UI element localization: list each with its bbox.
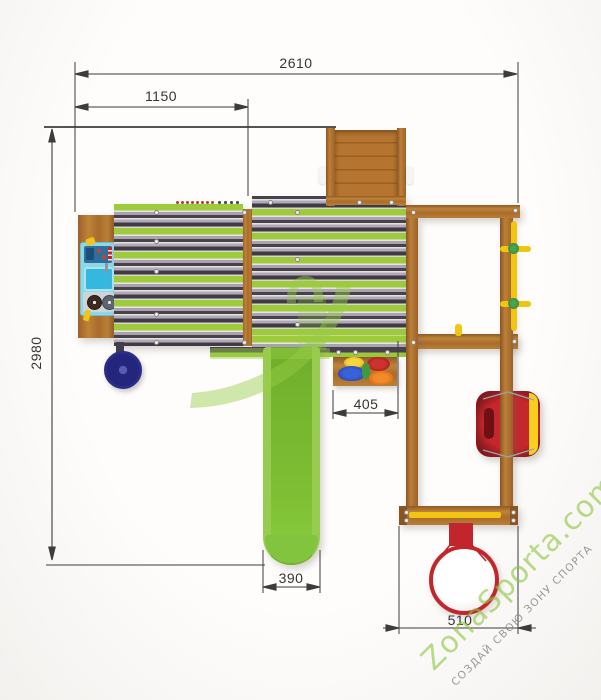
deck-dark-dot <box>224 201 227 204</box>
deck-right-section <box>252 196 406 347</box>
screw <box>513 208 518 213</box>
climb-box-bottom-bar <box>326 196 406 205</box>
screw <box>154 312 159 317</box>
screw <box>242 210 247 215</box>
screw <box>353 350 358 355</box>
climb-knob-upper <box>508 243 519 254</box>
dim-slide-label: 390 <box>266 570 316 586</box>
frame-post-left <box>406 218 418 508</box>
screw <box>511 518 516 523</box>
screw <box>154 210 159 215</box>
yellow-handle <box>455 324 462 336</box>
stove-burner-left <box>87 295 102 310</box>
slide-end-cap <box>265 535 318 563</box>
toy-mould-orange <box>369 371 393 385</box>
climb-box-post-left <box>326 128 335 206</box>
basketball-bracket <box>449 523 473 546</box>
toy-mould-red <box>367 357 390 371</box>
dim-overall-width-label: 2610 <box>261 55 331 71</box>
slide-bed <box>271 347 312 537</box>
deck-left-section <box>114 204 243 346</box>
dim-overall-width <box>75 62 518 212</box>
deck-dark-dot <box>218 201 221 204</box>
screw <box>295 210 300 215</box>
screw <box>389 200 394 205</box>
deck-red-dot <box>201 201 204 204</box>
deck-red-dot <box>181 201 184 204</box>
toy-mould-blue <box>338 366 365 381</box>
screw <box>268 200 273 205</box>
kitchen-knob-red-2 <box>102 255 106 259</box>
screw <box>295 257 300 262</box>
dim-left-section <box>75 99 248 196</box>
screw <box>404 518 409 523</box>
screw <box>154 239 159 244</box>
screw <box>154 340 159 345</box>
kitchen-control-panel <box>84 246 112 263</box>
climb-box-ramp <box>335 130 397 198</box>
screw <box>411 210 416 215</box>
swing-seat-yellow-edge <box>529 393 538 455</box>
bottom-beam-yellow-stripe <box>409 512 501 518</box>
deck-red-dot <box>206 201 209 204</box>
deck-red-dot <box>191 201 194 204</box>
dim-left-section-label: 1150 <box>131 88 191 104</box>
slide <box>263 347 320 565</box>
deck-dark-dot <box>236 201 239 204</box>
kitchen-screen <box>86 248 94 260</box>
climb-pole <box>511 221 517 331</box>
swing-seat-handle-slot <box>484 408 494 439</box>
climb-knob-lower <box>508 298 519 309</box>
deck-red-dot <box>196 201 199 204</box>
screw <box>242 340 247 345</box>
play-kitchen <box>80 242 116 316</box>
screw <box>357 200 362 205</box>
screw <box>336 350 341 355</box>
box-connector-left <box>319 166 326 184</box>
deck-red-dot <box>176 201 179 204</box>
kitchen-faucet <box>105 263 108 273</box>
climb-box-post-right <box>397 128 406 206</box>
box-connector-right <box>406 166 413 184</box>
frame-top-beam <box>406 205 520 218</box>
screw <box>411 340 416 345</box>
screw <box>295 322 300 327</box>
screw <box>154 269 159 274</box>
steering-wheel <box>104 351 142 389</box>
kitchen-knob-red-1 <box>97 249 101 253</box>
screw <box>512 339 517 344</box>
dim-toy-shelf-label: 405 <box>341 396 391 412</box>
kitchen-sink <box>84 267 114 291</box>
toy-mould-green <box>362 363 370 379</box>
deck-divider-beam <box>243 209 252 346</box>
screw <box>385 350 390 355</box>
screw <box>511 510 516 515</box>
deck-red-dot <box>211 201 214 204</box>
kitchen-red-bar <box>108 247 112 261</box>
deck-dark-dot <box>230 201 233 204</box>
drawing-canvas: 2610 1150 2980 405 390 510 ZonaSporta.co… <box>0 0 601 700</box>
deck-red-dot <box>186 201 189 204</box>
screw <box>404 510 409 515</box>
dim-overall-depth-label: 2980 <box>28 324 44 382</box>
